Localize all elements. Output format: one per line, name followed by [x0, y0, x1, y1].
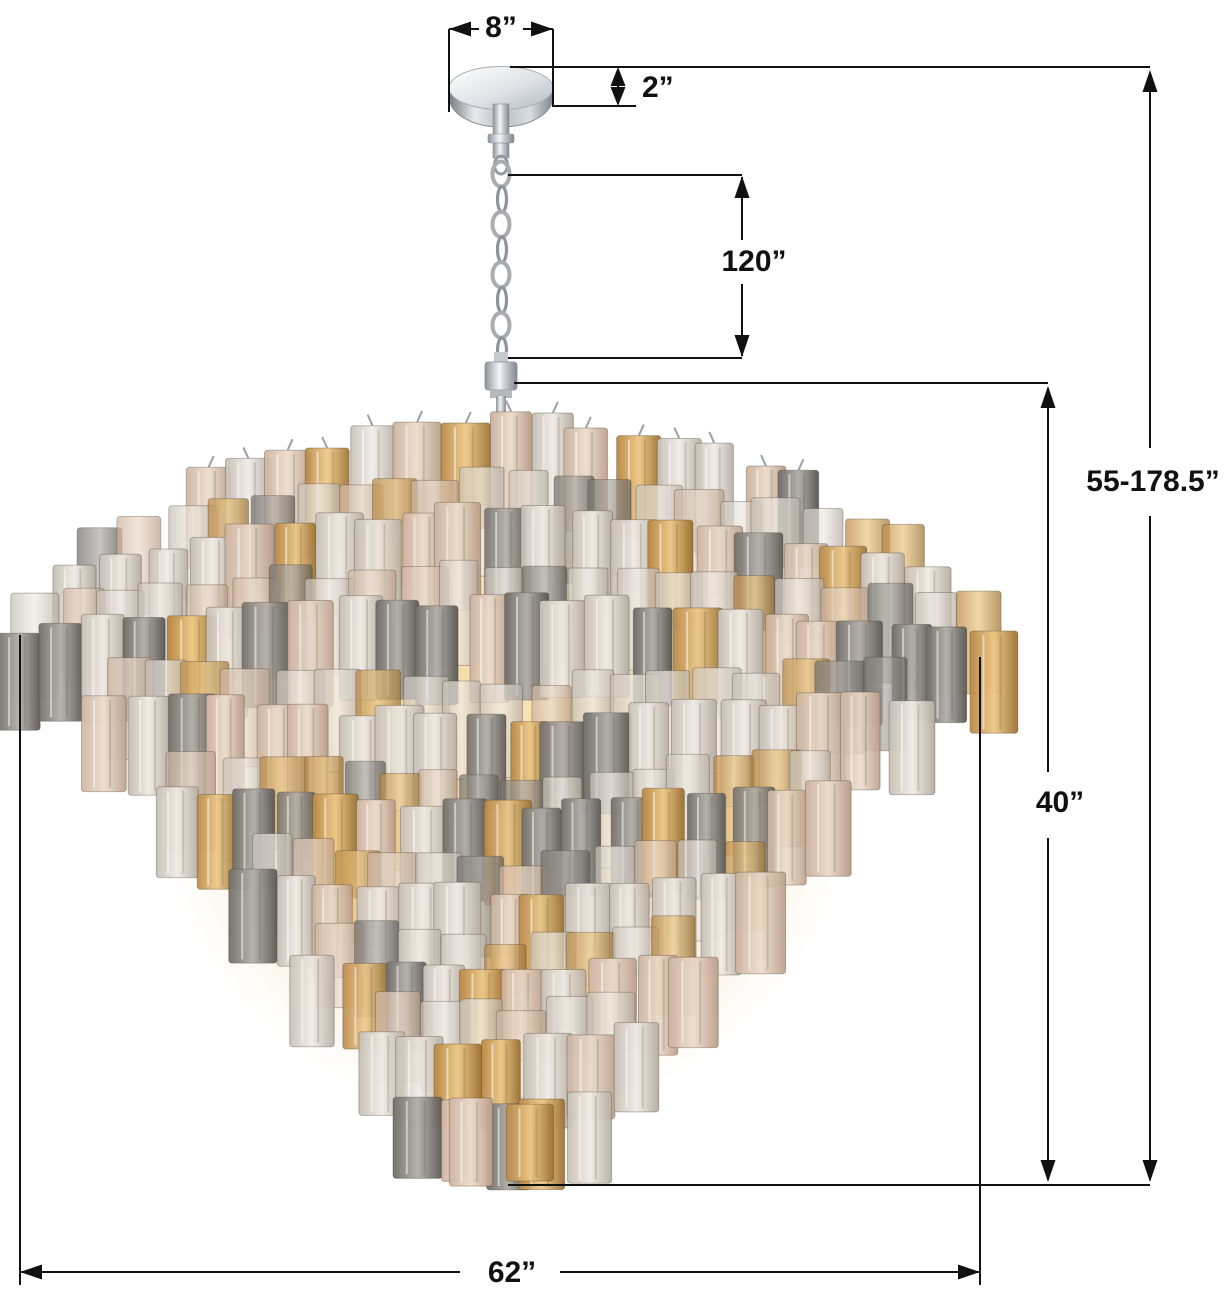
coupler-body — [485, 362, 517, 390]
glass-tube-tiers — [0, 401, 1018, 1190]
chandelier-illustration — [0, 67, 1018, 1190]
arrowhead-down — [1041, 1160, 1056, 1182]
glass-tube — [156, 787, 198, 878]
stem-collar — [488, 134, 514, 143]
hanger-wire — [209, 456, 214, 467]
glass-tube — [506, 1104, 553, 1181]
hanger-wire — [761, 455, 766, 466]
arrowhead-down — [735, 335, 750, 357]
arrowhead-down — [1143, 1160, 1158, 1182]
ceiling-canopy — [449, 67, 553, 175]
glass-tube — [39, 623, 83, 721]
hanger-wire — [709, 432, 714, 443]
arrowhead-up — [735, 176, 750, 198]
diagram-canvas: 8” 2” 120” 40” 55-178.5” — [0, 0, 1232, 1297]
hanger-wire — [553, 402, 558, 413]
glass-tube — [736, 872, 786, 974]
chain-link — [493, 313, 510, 338]
glass-tube — [229, 869, 277, 963]
arrowhead-left — [20, 1265, 42, 1280]
canopy-stem — [493, 104, 509, 138]
glass-tube — [970, 631, 1018, 733]
hanger-wire — [674, 428, 679, 439]
glass-tube — [614, 1023, 659, 1112]
hanger-wire — [322, 437, 327, 448]
glass-tube — [567, 1092, 611, 1183]
hanger-wire — [798, 459, 803, 470]
glass-tube — [290, 955, 335, 1047]
chain-link — [493, 262, 510, 287]
fixture-height-label: 40” — [1036, 786, 1084, 819]
hanger-wire — [288, 439, 293, 450]
hanger-wire — [243, 447, 248, 458]
arrowhead-left — [449, 22, 471, 37]
hanger-wire — [506, 401, 511, 412]
arrowhead-up — [1143, 70, 1158, 92]
glass-tube — [277, 876, 315, 967]
hanger-wire — [639, 425, 644, 436]
glass-tube — [128, 696, 170, 795]
glass-tube — [840, 692, 880, 790]
glass-tube — [768, 790, 807, 885]
chandelier-dimension-diagram: 8” 2” 120” 40” 55-178.5” — [0, 0, 1232, 1297]
canopy-top-face — [449, 67, 553, 110]
chain-link — [493, 212, 510, 237]
canopy-width-label: 8” — [485, 11, 517, 44]
chain-link — [498, 187, 507, 212]
glass-tube — [669, 957, 719, 1047]
hanger-wire — [417, 411, 422, 422]
overall-height-label: 55-178.5” — [1086, 465, 1219, 498]
glass-tube — [82, 696, 127, 792]
canopy-height-label: 2” — [642, 71, 674, 104]
hanger-wire — [368, 415, 373, 426]
arrowhead-right — [958, 1265, 980, 1280]
fixture-width-label: 62” — [488, 1256, 536, 1289]
hanger-wire — [466, 412, 471, 423]
glass-tube — [449, 1098, 492, 1186]
chain-link — [498, 288, 507, 313]
chain-link — [498, 237, 507, 262]
hanger-wire — [586, 417, 591, 428]
arrowhead-down — [611, 87, 626, 106]
arrowhead-up — [611, 67, 626, 86]
glass-tube — [393, 1097, 442, 1178]
chain-length-label: 120” — [721, 245, 786, 278]
glass-tube — [805, 781, 851, 877]
arrowhead-up — [1041, 386, 1056, 408]
glass-tube — [889, 701, 935, 795]
arrowhead-right — [531, 22, 553, 37]
hanging-chain — [493, 162, 510, 363]
